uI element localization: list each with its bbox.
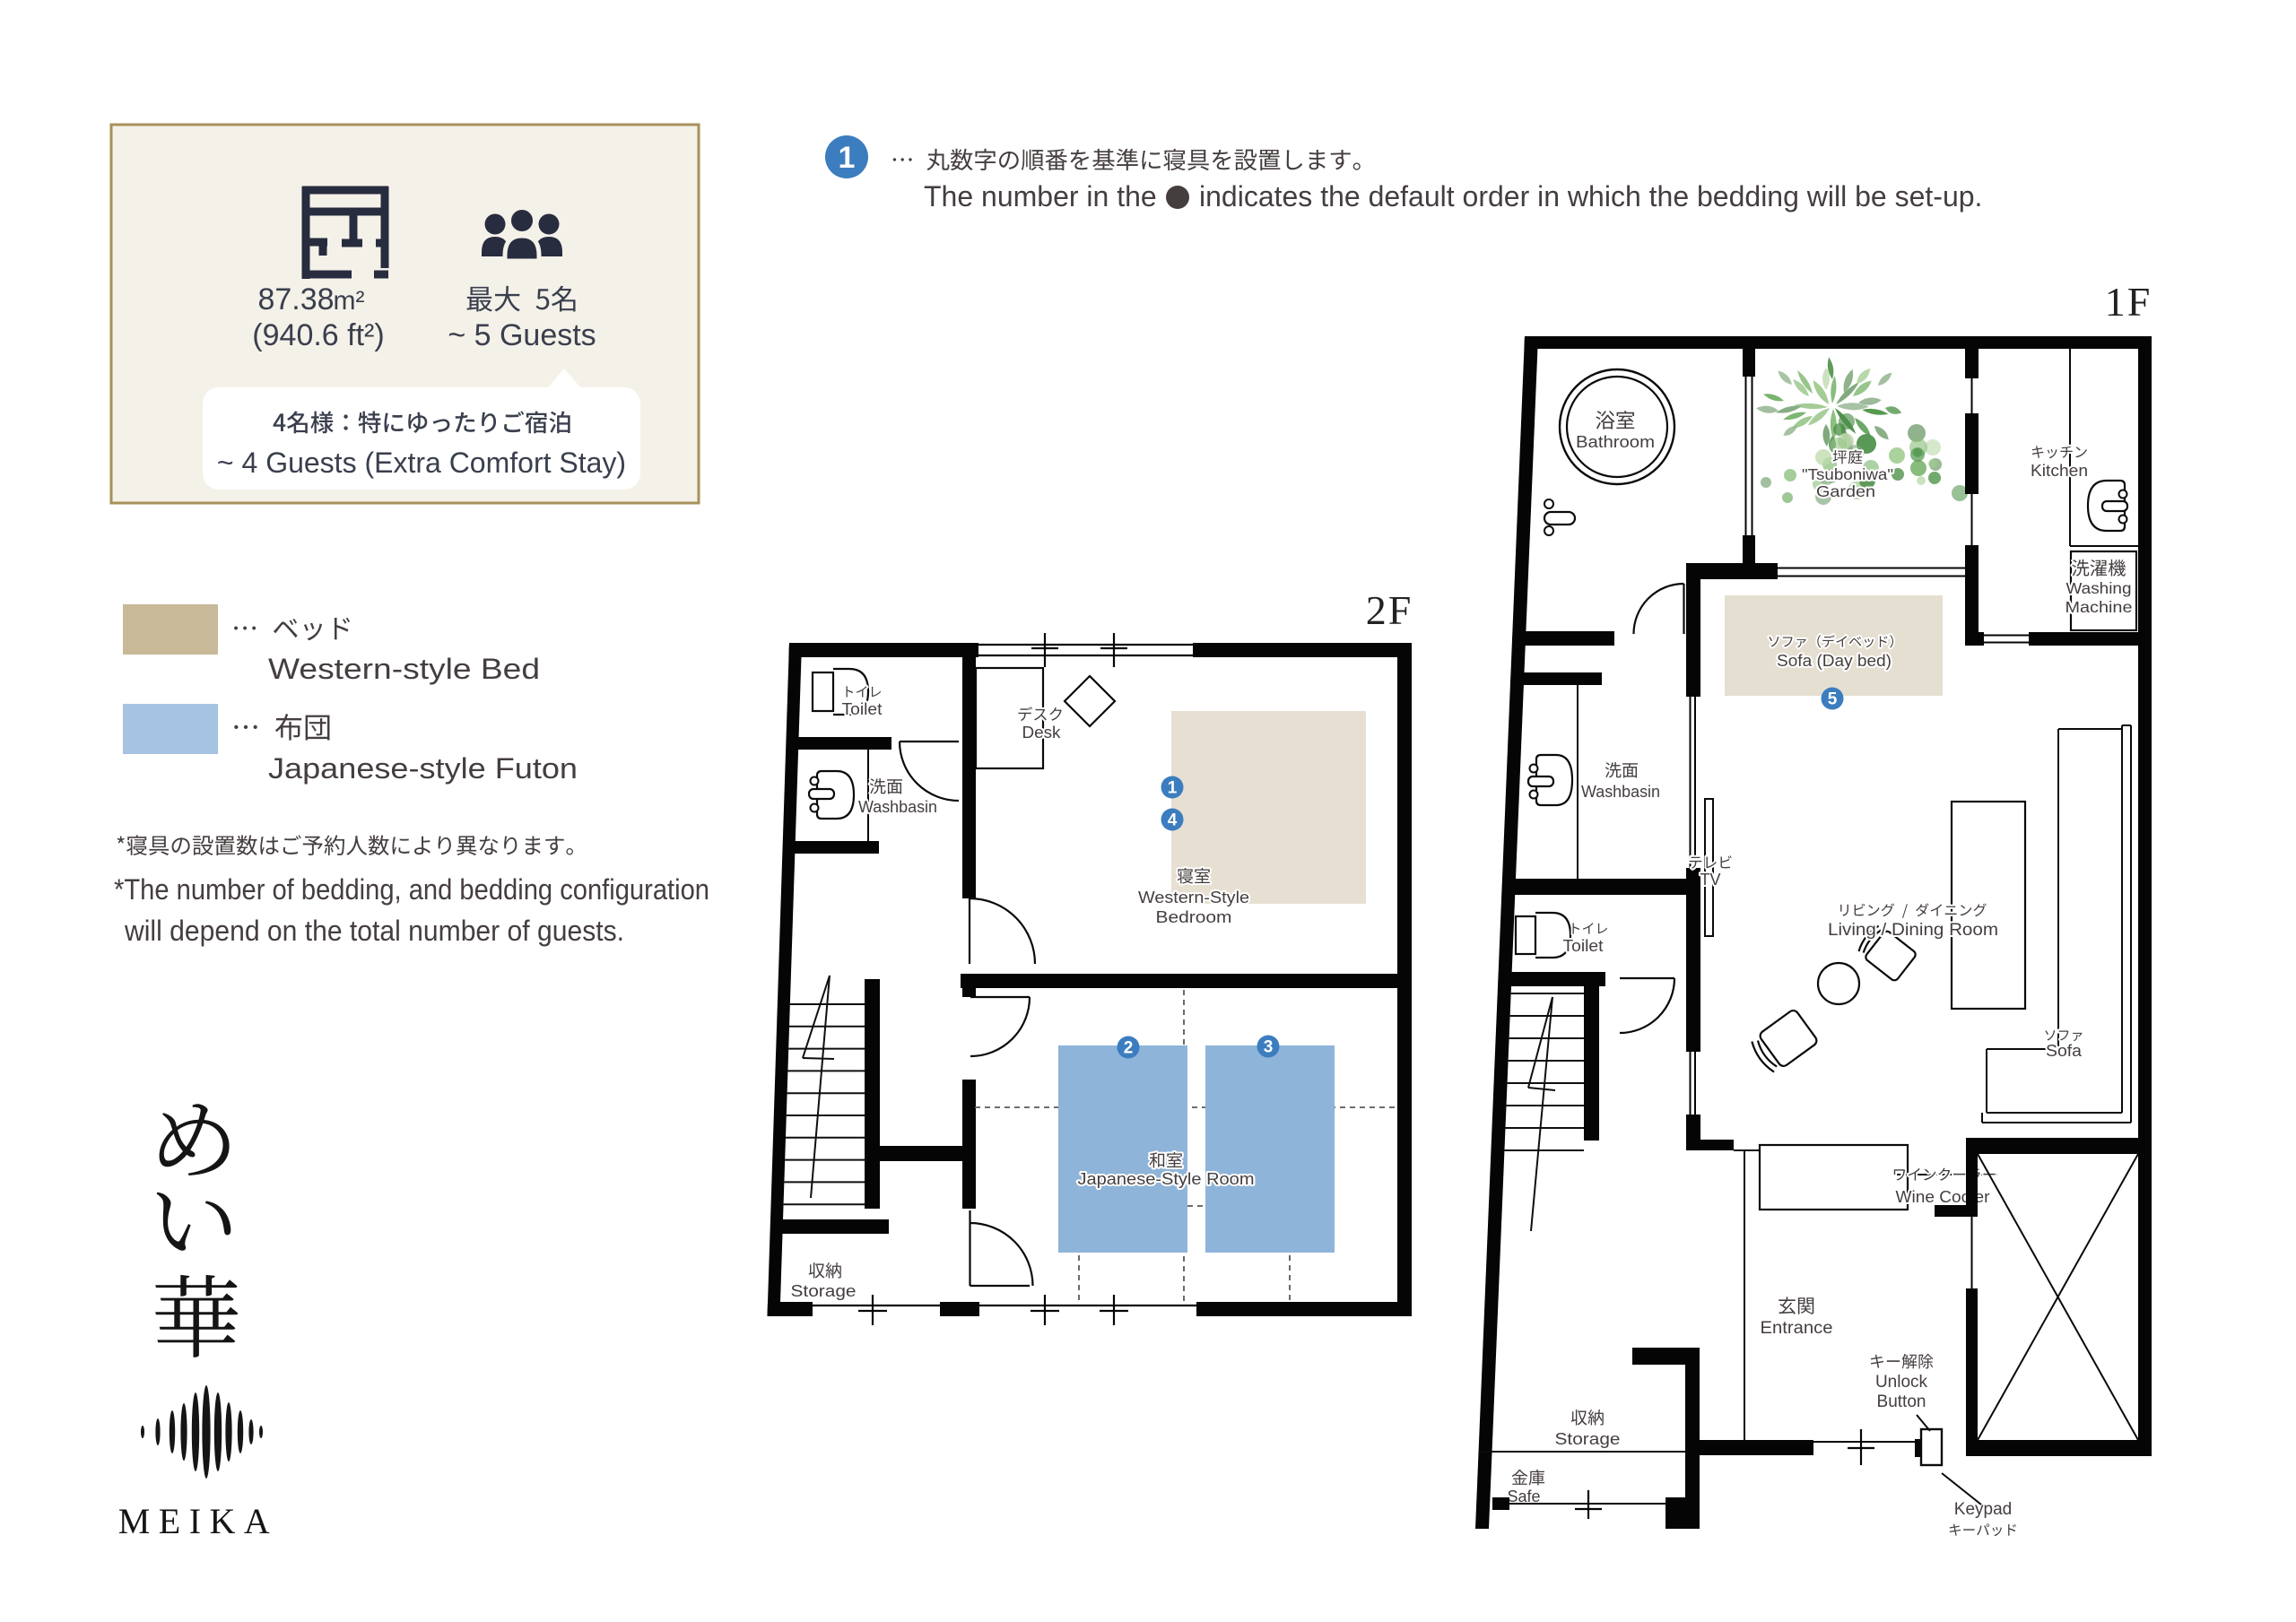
svg-text:Washbasin: Washbasin — [1581, 783, 1660, 801]
svg-text:1: 1 — [839, 141, 856, 175]
svg-text:Bathroom: Bathroom — [1576, 433, 1655, 451]
svg-text:Western-Style: Western-Style — [1138, 889, 1249, 906]
svg-text:Unlock: Unlock — [1875, 1373, 1928, 1392]
svg-text:"Tsuboniwa": "Tsuboniwa" — [1802, 465, 1893, 483]
svg-text:Entrance: Entrance — [1761, 1319, 1833, 1338]
svg-text:~ 5 Guests: ~ 5 Guests — [448, 318, 596, 352]
svg-text:Storage: Storage — [791, 1282, 857, 1300]
svg-text:MEIKA: MEIKA — [118, 1501, 279, 1541]
svg-text:Button: Button — [1877, 1392, 1926, 1411]
svg-text:~ 4 Guests (Extra Comfort Stay: ~ 4 Guests (Extra Comfort Stay) — [217, 447, 626, 479]
svg-text:Sofa: Sofa — [2046, 1042, 2083, 1060]
svg-text:Machine: Machine — [2066, 598, 2133, 616]
svg-text:The number in the: The number in the — [924, 180, 1157, 213]
svg-text:1F: 1F — [2105, 279, 2152, 325]
svg-text:5: 5 — [1828, 690, 1838, 709]
svg-text:m²: m² — [334, 286, 365, 316]
svg-text:2: 2 — [1124, 1039, 1134, 1058]
svg-text:Keypad: Keypad — [1954, 1500, 2012, 1519]
svg-text:3: 3 — [1264, 1038, 1274, 1057]
svg-text:Bedroom: Bedroom — [1156, 908, 1232, 926]
svg-text:Kitchen: Kitchen — [2031, 462, 2088, 480]
svg-text:will depend on the total numbe: will depend on the total number of guest… — [124, 915, 624, 947]
svg-text:Washing: Washing — [2066, 579, 2132, 597]
svg-text:Desk: Desk — [1022, 724, 1062, 742]
svg-text:87.38: 87.38 — [257, 282, 334, 317]
svg-text:TV: TV — [1700, 871, 1720, 889]
svg-text:Western-style Bed: Western-style Bed — [268, 653, 540, 685]
svg-text:Japanese-Style Room: Japanese-Style Room — [1078, 1170, 1255, 1188]
svg-text:Garden: Garden — [1816, 482, 1875, 500]
svg-text:*The number of bedding, and be: *The number of bedding, and bedding conf… — [114, 873, 709, 906]
svg-text:(940.6 ft²): (940.6 ft²) — [252, 318, 384, 352]
svg-text:Storage: Storage — [1555, 1430, 1621, 1448]
svg-text:Washbasin: Washbasin — [858, 798, 937, 816]
svg-text:4: 4 — [1168, 811, 1178, 830]
svg-text:Toilet: Toilet — [842, 700, 883, 718]
svg-text:Sofa (Day bed): Sofa (Day bed) — [1777, 652, 1892, 670]
svg-text:Toilet: Toilet — [1563, 937, 1604, 955]
svg-text:Japanese-style Futon: Japanese-style Futon — [268, 752, 578, 785]
svg-text:1: 1 — [1168, 779, 1178, 798]
svg-text:indicates the default order in: indicates the default order in which the… — [1199, 180, 1982, 213]
svg-text:2F: 2F — [1366, 587, 1413, 633]
svg-text:Living / Dining Room: Living / Dining Room — [1828, 921, 1998, 940]
